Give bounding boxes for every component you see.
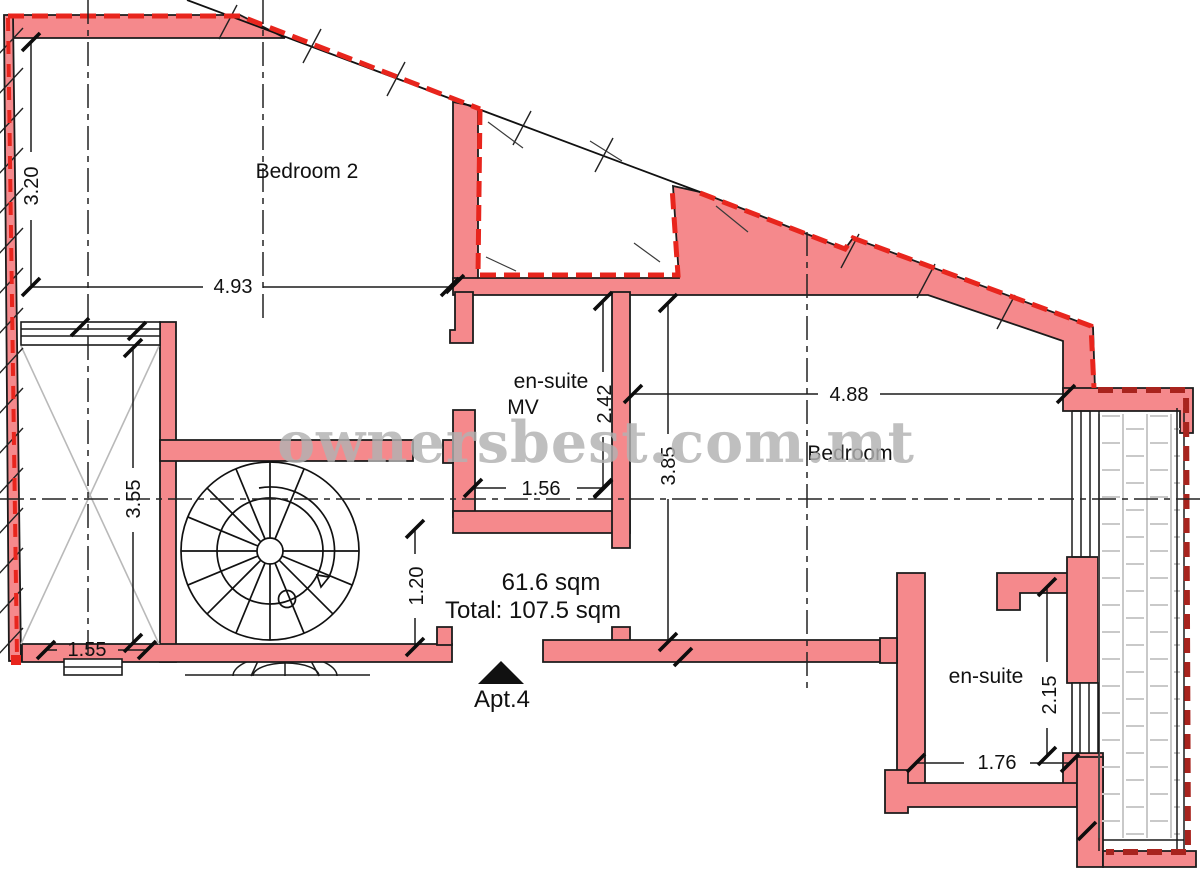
- dim-4-93: 4.93: [214, 276, 253, 298]
- dim-1-20: 1.20: [406, 567, 428, 606]
- floor-plan-drawing: Bedroom 2 en-suite MV Bedroom en-suite 6…: [0, 0, 1200, 874]
- floor-plan-page: Bedroom 2 en-suite MV Bedroom en-suite 6…: [0, 0, 1200, 874]
- room-label-ensuite-mv: en-suite: [514, 370, 589, 393]
- ensuite-balcony-window: [1072, 683, 1098, 753]
- entrance-label: Apt.4: [474, 686, 530, 713]
- room-label-ensuite: en-suite: [949, 665, 1024, 688]
- wall-entry-jamb: [437, 627, 452, 645]
- spiral-staircase: [181, 462, 359, 640]
- dim-3-55: 3.55: [123, 480, 145, 519]
- area-label-apartment: 61.6 sqm: [502, 569, 601, 596]
- wall-void-left: [453, 102, 478, 284]
- wall-ensuite-top: [997, 573, 1070, 610]
- wall-mv-upper-left: [450, 292, 473, 343]
- bedroom-balcony-window: [1072, 411, 1090, 557]
- boundary-end-marker: [11, 655, 21, 665]
- wall-bedroom-bottom: [543, 640, 900, 662]
- balcony-tiles: [1099, 414, 1180, 838]
- watermark: ownersbest.com.mt: [277, 409, 915, 476]
- dim-1-76: 1.76: [978, 752, 1017, 774]
- area-label-total: Total: 107.5 sqm: [445, 597, 621, 624]
- entrance-arrow-icon: [478, 661, 524, 684]
- wall-top-right-sloped: [453, 186, 1095, 390]
- wall-top-bedroom2: [8, 15, 285, 38]
- dim-1-56: 1.56: [522, 478, 561, 500]
- dim-3-20: 3.20: [21, 167, 43, 206]
- dim-2-15: 2.15: [1039, 676, 1061, 715]
- dim-1-55: 1.55: [68, 639, 107, 661]
- wall-mv-bottom: [453, 511, 630, 533]
- wall-ensuite-left-connector: [880, 638, 897, 663]
- wall-ensuite-right-column: [1067, 557, 1098, 683]
- room-label-bedroom2: Bedroom 2: [256, 160, 359, 183]
- wall-shaft-right: [160, 322, 176, 662]
- dim-4-88: 4.88: [830, 384, 869, 406]
- stair-direction-arrow: [317, 575, 329, 587]
